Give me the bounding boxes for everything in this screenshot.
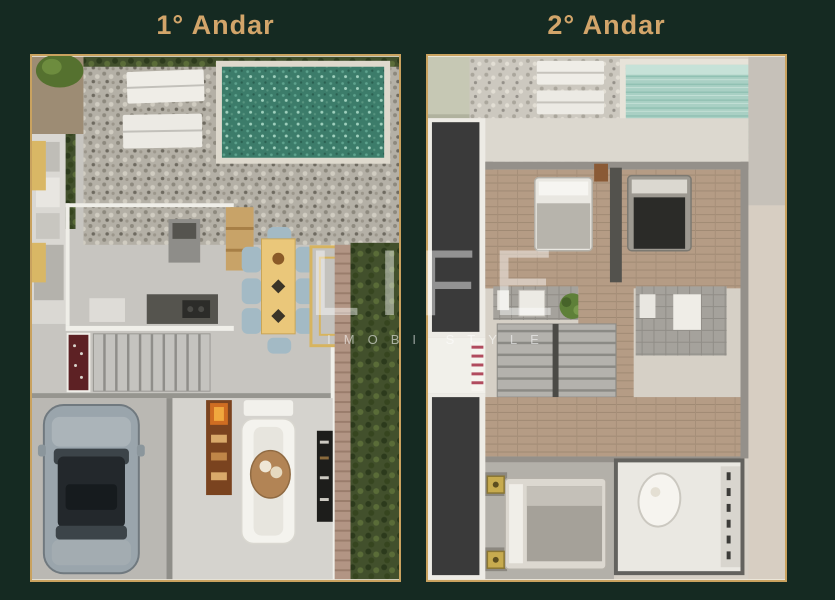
floor-plan-1-image [32,56,399,580]
master-bathroom [616,460,743,573]
floor1-title: 1° Andar [30,7,401,43]
lower-wood-floor [485,397,740,456]
double-height-void-lower [428,393,485,579]
floor2-title: 2° Andar [426,7,787,43]
closet [721,466,741,567]
floor-plan-2-image [428,56,785,580]
staircase [93,334,210,391]
floor-mat [89,298,125,322]
bed-left [535,178,592,251]
brick-walkway [335,245,351,579]
wood-deck [32,56,83,134]
outdoor-kitchen [32,134,66,324]
dining-table [261,239,295,334]
floor-plan-1 [30,54,401,582]
master-bedroom [485,462,614,579]
bed-right [628,176,691,251]
bench [594,164,608,182]
staircase [497,324,616,397]
swimming-pool [216,61,390,164]
double-height-void [428,118,485,338]
car [38,405,145,573]
garage-wall [167,398,173,579]
floor-plan-2 [426,54,787,582]
tv-panel [317,431,333,522]
bathroom-right [636,286,727,355]
red-rug [428,338,485,393]
fireplace-shelf [206,400,232,495]
wine-cellar [68,334,90,391]
divider-wall [610,168,622,283]
round-rug [251,451,291,498]
hedge-right [351,243,399,579]
kitchen-island [147,294,218,324]
side-walkway-top [748,57,785,205]
